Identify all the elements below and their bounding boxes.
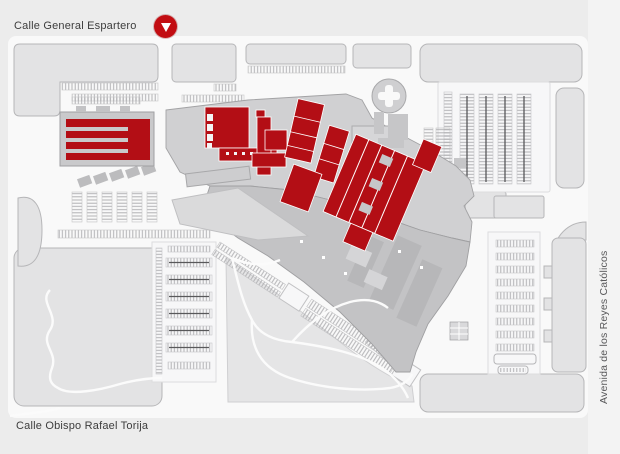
down-triangle-icon xyxy=(161,23,171,32)
site-map: Calle General Espartero Calle Obispo Raf… xyxy=(0,0,620,454)
parking-lot-bottom-right xyxy=(488,232,540,374)
location-marker[interactable] xyxy=(154,15,177,38)
parking-lot-center xyxy=(152,242,216,382)
street-label-right: Avenida de los Reyes Católicos xyxy=(598,251,610,404)
map-drawing xyxy=(0,0,620,454)
street-label-bottom: Calle Obispo Rafael Torija xyxy=(16,420,148,432)
street-label-top: Calle General Espartero xyxy=(14,20,137,32)
